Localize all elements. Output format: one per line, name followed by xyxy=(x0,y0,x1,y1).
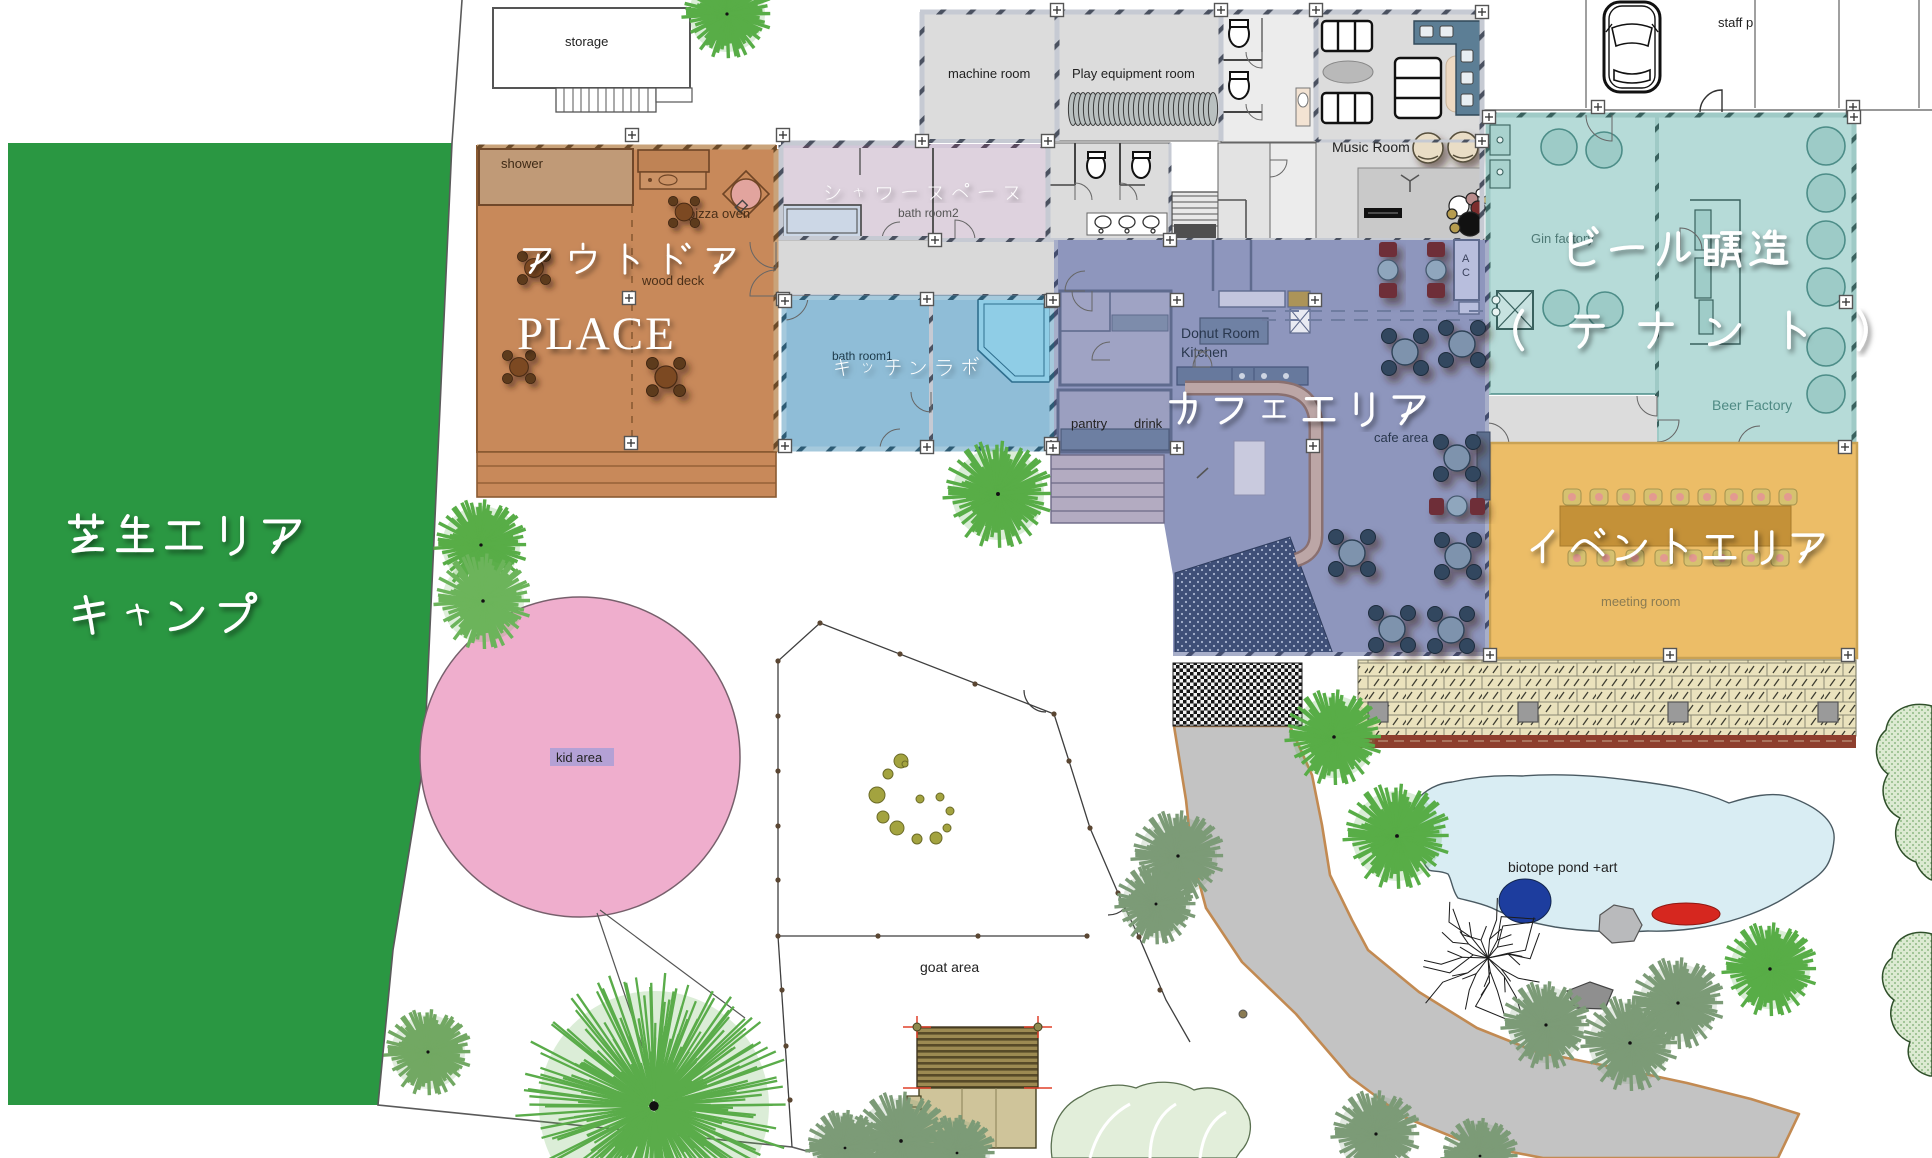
svg-text:PLACE: PLACE xyxy=(517,308,676,360)
svg-text:meeting room: meeting room xyxy=(1601,594,1680,609)
svg-text:kid area: kid area xyxy=(556,750,603,765)
svg-text:C: C xyxy=(1462,267,1470,279)
svg-text:cafe area: cafe area xyxy=(1374,430,1429,445)
svg-text:pantry: pantry xyxy=(1071,416,1108,431)
svg-text:wood deck: wood deck xyxy=(641,273,705,288)
svg-text:storage: storage xyxy=(565,34,608,49)
svg-text:machine room: machine room xyxy=(948,66,1030,81)
svg-text:staff p: staff p xyxy=(1718,15,1753,30)
svg-text:drink: drink xyxy=(1134,416,1163,431)
svg-text:Donut Room: Donut Room xyxy=(1181,325,1260,341)
svg-text:Play equipment room: Play equipment room xyxy=(1072,66,1195,81)
svg-text:Kitchen: Kitchen xyxy=(1181,344,1228,360)
svg-text:bath room2: bath room2 xyxy=(898,206,959,220)
svg-text:Beer Factory: Beer Factory xyxy=(1712,397,1792,413)
svg-text:goat area: goat area xyxy=(920,959,979,975)
svg-text:shower: shower xyxy=(501,156,544,171)
svg-text:A: A xyxy=(1462,253,1470,265)
svg-text:biotope pond +art: biotope pond +art xyxy=(1508,859,1617,875)
